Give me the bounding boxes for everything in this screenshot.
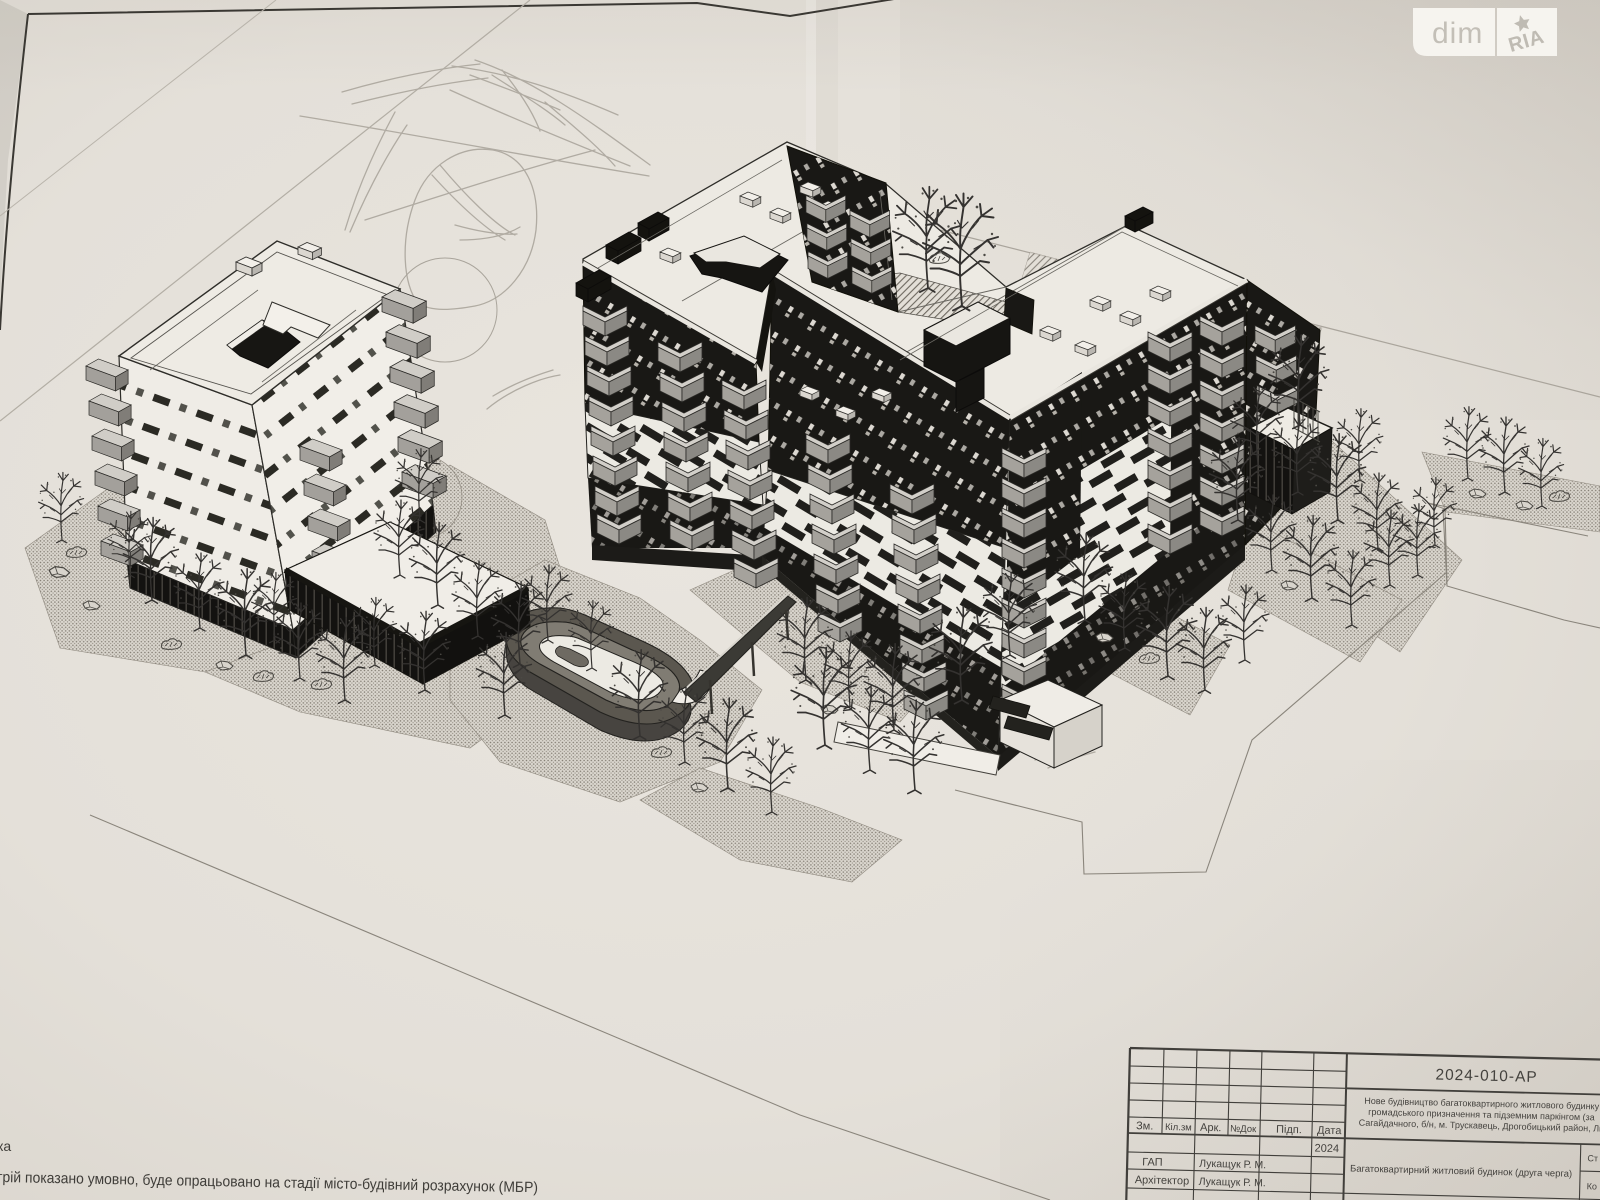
svg-text:№Док: №Док [1230, 1123, 1257, 1135]
svg-text:Лукащук Р. М.: Лукащук Р. М. [1199, 1176, 1266, 1190]
svg-text:dim: dim [1432, 17, 1483, 50]
svg-text:2024-010-АР: 2024-010-АР [1435, 1066, 1538, 1085]
svg-text:Архітектор: Архітектор [1135, 1174, 1190, 1187]
svg-text:Зм.: Зм. [1136, 1120, 1154, 1132]
svg-text:Ко: Ко [1587, 1181, 1597, 1191]
svg-text:Арк.: Арк. [1200, 1122, 1222, 1135]
svg-text:ГАП: ГАП [1142, 1156, 1163, 1168]
svg-text:ка: ка [0, 1138, 11, 1154]
svg-text:Лукащук Р. М.: Лукащук Р. М. [1199, 1158, 1266, 1172]
svg-text:Кіл.зм: Кіл.зм [1165, 1122, 1192, 1134]
svg-text:Ст: Ст [1587, 1153, 1598, 1163]
svg-text:Підп.: Підп. [1276, 1124, 1302, 1137]
svg-text:2024: 2024 [1314, 1143, 1339, 1156]
svg-text:Дата: Дата [1317, 1125, 1343, 1138]
